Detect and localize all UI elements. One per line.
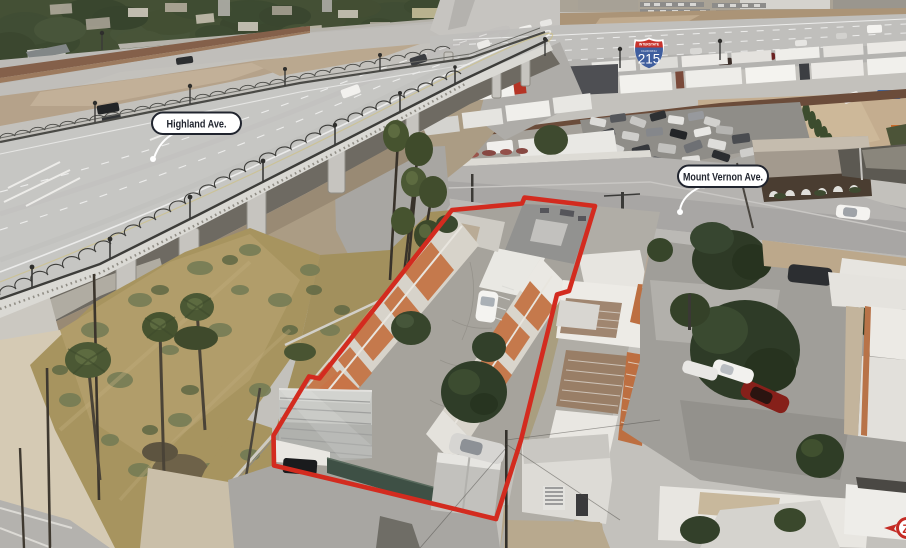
svg-text:Mount Vernon Ave.: Mount Vernon Ave. xyxy=(683,172,763,184)
svg-text:215: 215 xyxy=(638,52,661,67)
svg-text:Highland Ave.: Highland Ave. xyxy=(167,119,227,131)
svg-text:INTERSTATE: INTERSTATE xyxy=(639,43,660,47)
svg-text:Z: Z xyxy=(902,522,906,536)
